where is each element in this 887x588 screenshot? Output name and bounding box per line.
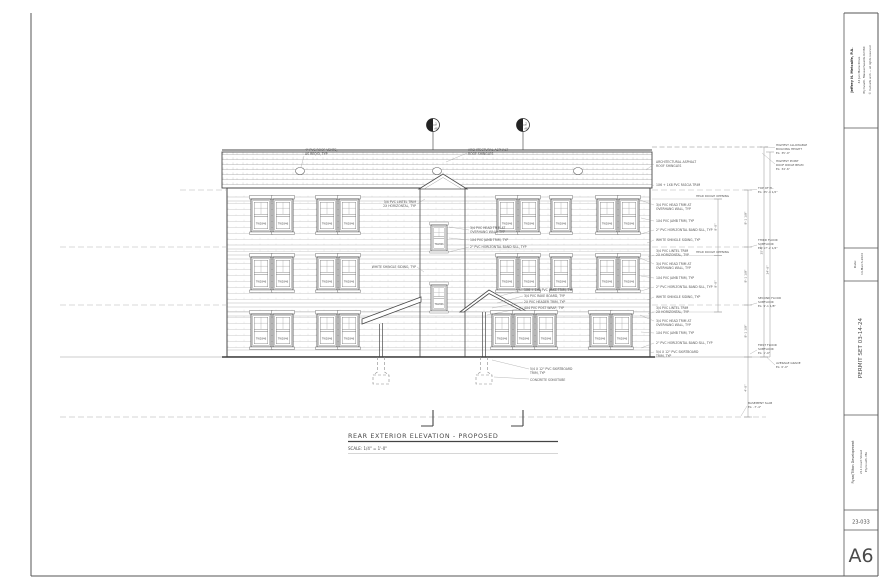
section-number: 1	[435, 121, 437, 125]
sheet-number: A6	[848, 545, 873, 567]
callout-siding: WHITE SHINGLE SIDING, TYP	[372, 265, 416, 269]
callout-siding: WHITE SHINGLE SIDING, TYP	[656, 295, 700, 299]
title-block: Jeffrey N. Metcalfe, P.A. 44 Jan Marie D…	[844, 13, 878, 576]
callout-roof-shingles-2: ROOF SHINGLES	[656, 164, 681, 168]
callout-header-trim: 2X PVC HEADER TRIM, TYP	[524, 300, 565, 304]
callout-siding: WHITE SHINGLE SIDING, TYP	[656, 238, 700, 242]
dim-head-height: 8'-0"	[714, 280, 718, 288]
callout-rake-board: 3/4 PVC RAKE BOARD, TYP	[524, 294, 565, 298]
drawing-scale: SCALE: 1/4" = 1'-0"	[348, 446, 387, 451]
title-block-project: Ryan/Tilton Development 211 Court Street…	[851, 440, 868, 484]
permit-set-label: PERMIT SET 03-14-24	[858, 317, 864, 378]
callout-skirtboard-2: TRIM, TYP	[655, 354, 671, 358]
callout-head-trim-2: OVERHANG WALL, TYP	[656, 207, 691, 211]
roof-vent	[433, 168, 442, 175]
level-basement-slab-el: EL: -7'-4"	[748, 405, 762, 409]
dim-floor-height: 8'-1 1/8"	[744, 269, 748, 283]
drawing-title: REAR EXTERIOR ELEVATION - PROPOSED	[348, 432, 498, 440]
architect-name: Jeffrey N. Metcalfe, P.A.	[850, 47, 854, 93]
callout-rake-trim: 1X6 + 1X8 PVC RAKE TRIM, TYP	[524, 288, 573, 292]
callout-sill: 2" PVC HORIZONTAL BAND SILL, TYP	[656, 285, 713, 289]
section-line-flags	[421, 410, 523, 426]
dim-head-rough-opening: HEAD ROUGH OPENING	[696, 250, 729, 254]
callout-sonotube: CONCRETE SONOTUBE	[530, 378, 565, 382]
title-block-date: Date: 14-March-2024	[853, 253, 864, 275]
title-block-architect: Jeffrey N. Metcalfe, P.A. 44 Jan Marie D…	[850, 45, 872, 94]
section-number: 2	[525, 121, 527, 125]
callout-roof-shingles-2: ROOF SHINGLES	[468, 152, 493, 156]
dim-head-rough-opening: HEAD ROUGH OPENING	[696, 194, 729, 198]
dim-floor-height: 8'-1 1/8"	[744, 324, 748, 338]
callout-post-wrap: 4X4 PVC POST WRAP, TYP	[524, 306, 564, 310]
section-sheet: A8	[524, 126, 528, 130]
architect-address-2: Plymouth, Massachusetts 02360	[862, 46, 866, 93]
dim-floor-height: 8'-1 1/8"	[744, 211, 748, 225]
roof-vent	[296, 168, 305, 175]
architect-address-1: 44 Jan Marie Drive	[857, 56, 861, 83]
architect-note: © metcalfe arch — all rights reserved	[868, 45, 872, 94]
callout-head-trim-2: OVERHANG WALL, TYP	[656, 323, 691, 327]
project-address-1: 211 Court Street	[859, 449, 863, 474]
callout-roof-vents-2: AS REQ'D, TYP	[305, 152, 328, 156]
level-third-floor-el: EL: 17'-2 1/4"	[758, 246, 778, 250]
callout-jamb: 1X4 PVC JAMB TRIM, TYP	[656, 276, 694, 280]
callout-sill: 2" PVC HORIZONTAL BAND SILL, TYP	[656, 228, 713, 232]
callout-fascia: 1X6 + 1X8 PVC FASCIA TRIM	[656, 183, 700, 187]
level-labels: HIGHEST ALLOWABLE BUILDING HEIGHT EL: 35…	[741, 143, 807, 416]
elevation-sheet: TW2846 TW2846 Jeffrey N. Metcalfe, P.A. …	[0, 0, 887, 588]
dim-overall-ridge: 34'-6"	[766, 265, 770, 275]
level-first-floor-el: EL: 1'-0"	[758, 351, 771, 355]
callout-head-trim-2: OVERHANG WALL, TYP	[656, 266, 691, 270]
callout-sill: 2" PVC HORIZONTAL BAND SILL, TYP	[656, 341, 713, 345]
callout-skirtboard-2: TRIM, TYP	[529, 371, 545, 375]
dim-head-height: 8'-0"	[714, 223, 718, 231]
section-marker-right: 2 A8	[517, 119, 530, 151]
level-ridge-el: EL: 34'-6"	[776, 167, 791, 171]
callout-lintel-2: 2X HORIZONTAL, TYP	[656, 253, 689, 257]
dimensions: HEAD ROUGH OPENING HEAD ROUGH OPENING 8'…	[652, 147, 774, 417]
callout-jamb: 1X4 PVC JAMB TRIM, TYP	[470, 238, 508, 242]
client-name: Ryan/Tilton Development	[851, 440, 855, 484]
section-sheet: A8	[434, 126, 438, 130]
foundation-footings	[373, 357, 492, 384]
callout-jamb: 1X4 PVC JAMB TRIM, TYP	[656, 331, 694, 335]
job-number: 23-033	[852, 520, 870, 526]
roof-vent	[574, 168, 583, 175]
section-marker-left: 1 A8	[427, 119, 440, 151]
level-average-grade-el: EL: 0'-0"	[776, 365, 789, 369]
level-top-of-plate-el: EL: 25'-4 1/2"	[758, 190, 778, 194]
callout-head-trim-2: OVERHANG WALL, TYP	[470, 230, 505, 234]
date-label: Date:	[853, 260, 857, 268]
project-address-2: Plymouth, MA	[864, 452, 868, 472]
drawing-title-block: REAR EXTERIOR ELEVATION - PROPOSED SCALE…	[348, 432, 558, 454]
callout-sill: 2" PVC HORIZONTAL BAND SILL, TYP	[470, 245, 527, 249]
dim-below-grade: 4'-0"	[744, 384, 748, 392]
callout-lintel-2: 2X HORIZONTAL, TYP	[383, 204, 416, 208]
level-second-floor-el: EL: 9'-1 1/8"	[758, 304, 776, 308]
right-callouts: ARCHITECTURAL ASPHALT ROOF SHINGLES 1X6 …	[640, 160, 713, 358]
date-value: 14-March-2024	[860, 253, 864, 275]
level-max-height-el: EL: 35'-0"	[776, 151, 791, 155]
callout-jamb: 1X4 PVC JAMB TRIM, TYP	[656, 219, 694, 223]
